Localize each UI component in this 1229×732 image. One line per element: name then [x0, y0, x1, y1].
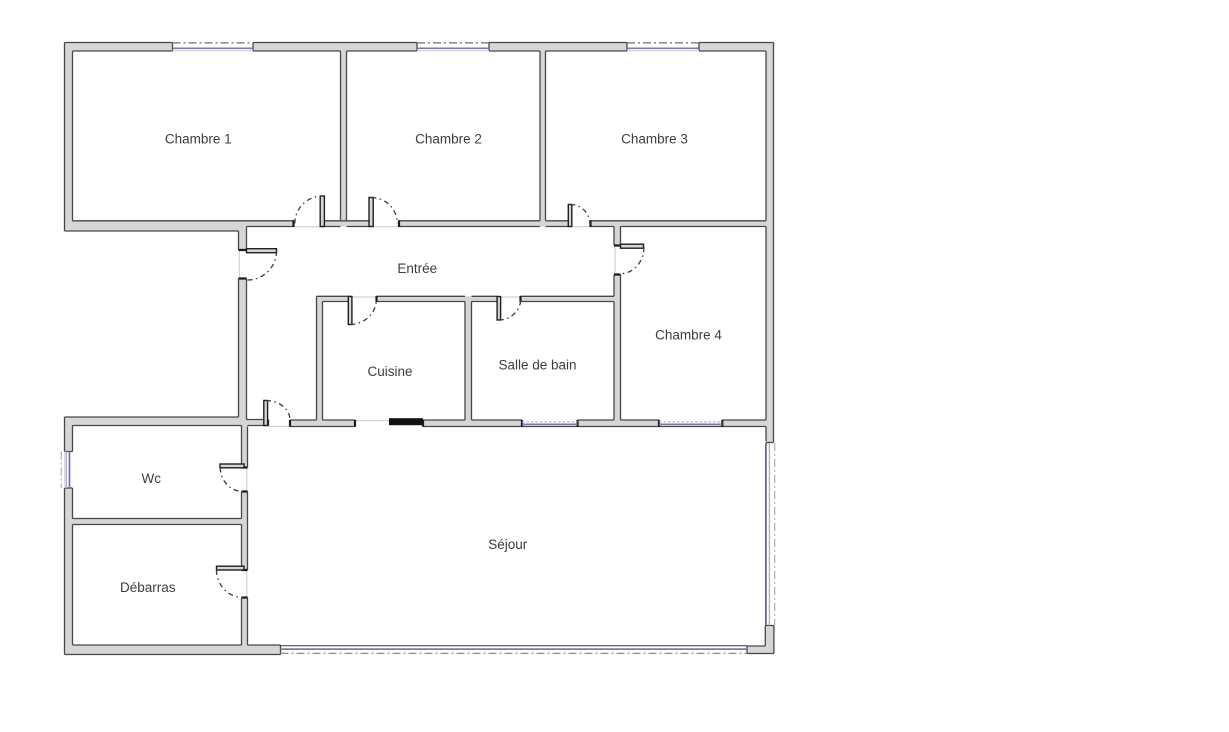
svg-text:Chambre 3: Chambre 3: [621, 132, 688, 147]
svg-text:Séjour: Séjour: [488, 537, 528, 552]
svg-text:Wc: Wc: [142, 471, 162, 486]
svg-text:Cuisine: Cuisine: [367, 364, 412, 379]
svg-text:Chambre 4: Chambre 4: [655, 328, 722, 343]
svg-text:Chambre 2: Chambre 2: [415, 132, 482, 147]
svg-text:Salle de bain: Salle de bain: [498, 358, 576, 373]
svg-text:Chambre 1: Chambre 1: [165, 132, 232, 147]
svg-text:Entrée: Entrée: [397, 261, 437, 276]
svg-text:Débarras: Débarras: [120, 580, 176, 595]
